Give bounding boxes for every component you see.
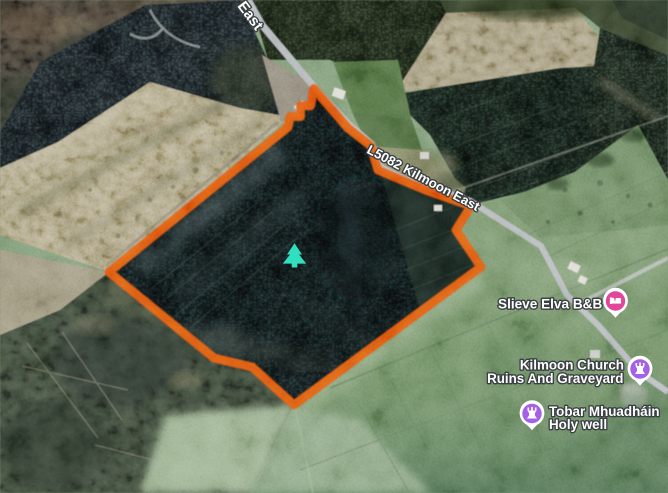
svg-text:Holy well: Holy well xyxy=(549,417,607,432)
svg-text:Slieve Elva B&B: Slieve Elva B&B xyxy=(498,297,602,312)
svg-text:Ruins And Graveyard: Ruins And Graveyard xyxy=(487,371,623,386)
